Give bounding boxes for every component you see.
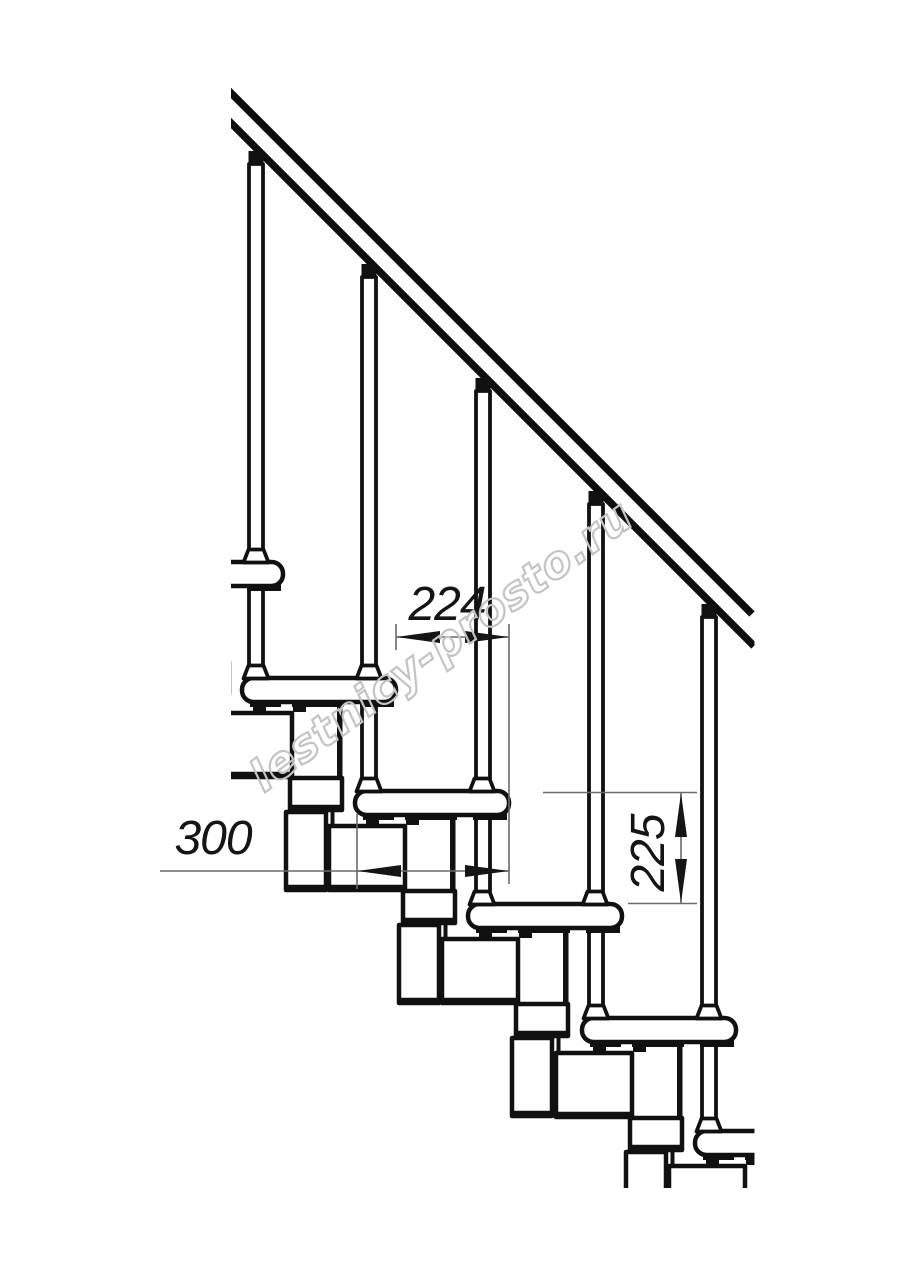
arrow-up-icon	[675, 793, 687, 837]
baluster-1	[249, 151, 264, 678]
stair-unit-6	[667, 1119, 849, 1280]
staircase-structure	[101, 87, 849, 1280]
dimension-225: 225	[543, 793, 697, 904]
arrow-down-icon	[675, 859, 687, 903]
drawing-page: 224 300 225 lestnicy-prosto.ru	[0, 0, 914, 1280]
baluster-4	[589, 491, 604, 1018]
baluster-5	[702, 604, 717, 1131]
dimension-225-label: 225	[622, 813, 675, 892]
dimension-300-label: 300	[174, 812, 252, 865]
watermark-text: lestnicy-prosto.ru	[240, 490, 642, 802]
staircase-technical-drawing: 224 300 225 lestnicy-prosto.ru	[0, 0, 914, 1280]
